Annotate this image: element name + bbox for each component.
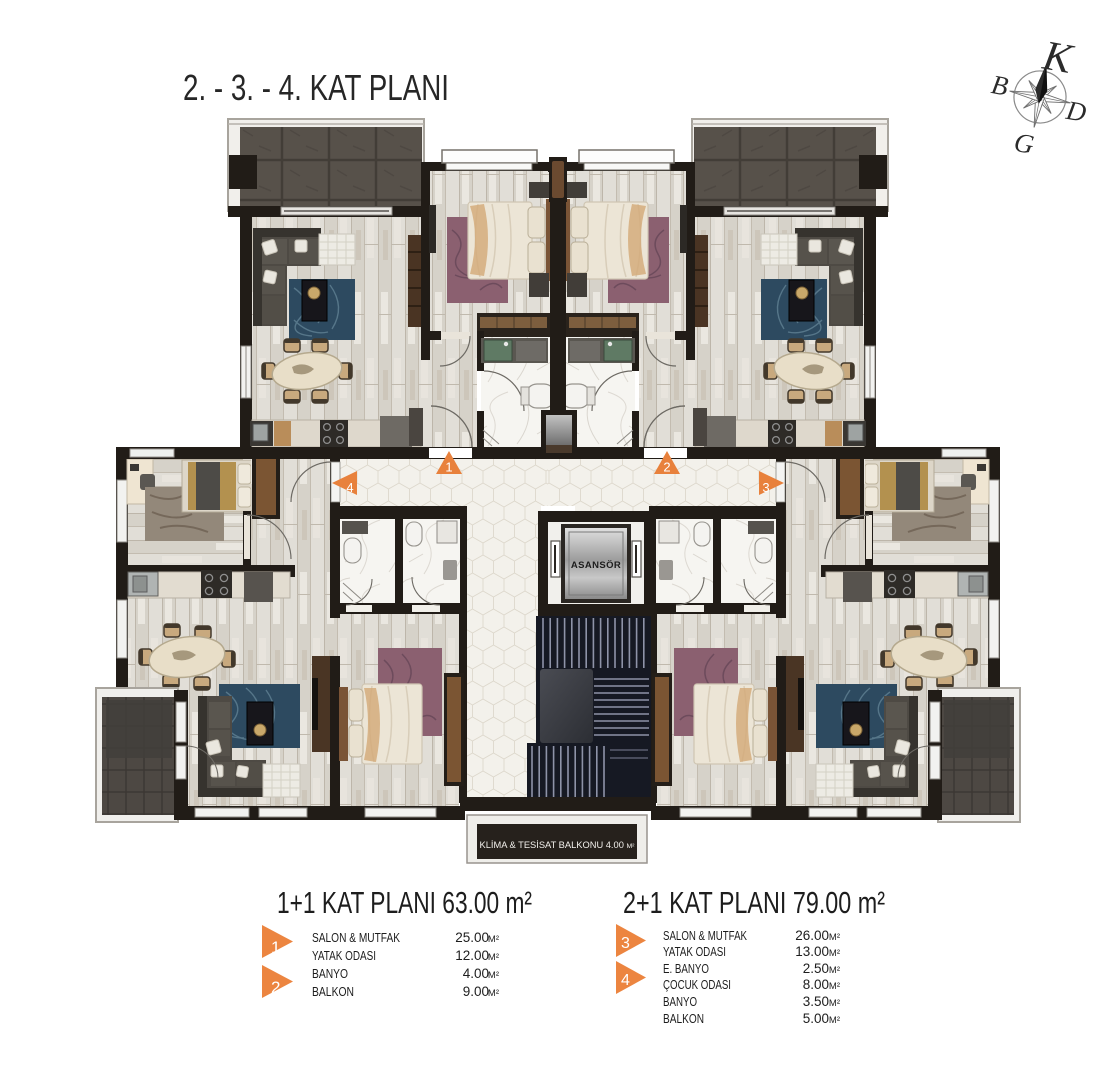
svg-text:SALON & MUTFAK: SALON & MUTFAK [312, 930, 400, 945]
svg-text:M²: M² [488, 952, 499, 963]
svg-text:M²: M² [829, 965, 840, 976]
svg-text:2.50: 2.50 [803, 961, 829, 976]
svg-text:2: 2 [271, 978, 280, 997]
svg-text:M²: M² [488, 988, 499, 999]
svg-text:4.00: 4.00 [463, 966, 489, 981]
svg-text:4: 4 [346, 480, 353, 495]
svg-text:2+1 KAT PLANI 79.00 m²: 2+1 KAT PLANI 79.00 m² [623, 885, 885, 920]
svg-text:BANYO: BANYO [663, 994, 697, 1009]
svg-text:KLİMA & TESİSAT BALKONU 4.00 M: KLİMA & TESİSAT BALKONU 4.00 M² [480, 840, 636, 850]
svg-text:M²: M² [488, 970, 499, 981]
svg-text:M²: M² [829, 948, 840, 959]
svg-text:1: 1 [445, 460, 452, 475]
svg-text:12.00: 12.00 [455, 948, 489, 963]
svg-text:YATAK ODASI: YATAK ODASI [663, 944, 726, 959]
svg-text:E. BANYO: E. BANYO [663, 961, 709, 976]
svg-text:1: 1 [271, 938, 280, 957]
svg-text:M²: M² [829, 932, 840, 943]
svg-text:ÇOCUK ODASI: ÇOCUK ODASI [663, 977, 731, 992]
svg-text:5.00: 5.00 [803, 1011, 829, 1026]
svg-text:3: 3 [762, 480, 769, 495]
svg-text:BANYO: BANYO [312, 966, 348, 981]
svg-text:25.00: 25.00 [455, 930, 489, 945]
svg-text:4: 4 [621, 972, 630, 989]
svg-text:3: 3 [621, 935, 630, 952]
svg-text:9.00: 9.00 [463, 984, 489, 999]
svg-text:M²: M² [488, 934, 499, 945]
svg-text:2: 2 [663, 460, 670, 475]
svg-text:13.00: 13.00 [795, 944, 829, 959]
svg-text:M²: M² [829, 998, 840, 1009]
svg-text:26.00: 26.00 [795, 928, 829, 943]
svg-text:8.00: 8.00 [803, 977, 829, 992]
svg-text:YATAK ODASI: YATAK ODASI [312, 948, 376, 963]
svg-text:BALKON: BALKON [312, 984, 354, 999]
svg-text:3.50: 3.50 [803, 994, 829, 1009]
svg-text:ASANSÖR: ASANSÖR [571, 560, 621, 571]
svg-text:1+1 KAT PLANI 63.00 m²: 1+1 KAT PLANI 63.00 m² [277, 885, 532, 920]
svg-text:SALON & MUTFAK: SALON & MUTFAK [663, 928, 747, 943]
svg-text:M²: M² [829, 981, 840, 992]
svg-text:BALKON: BALKON [663, 1011, 704, 1026]
svg-text:2. - 3. - 4. KAT PLANI: 2. - 3. - 4. KAT PLANI [183, 67, 449, 108]
svg-text:M²: M² [829, 1015, 840, 1026]
